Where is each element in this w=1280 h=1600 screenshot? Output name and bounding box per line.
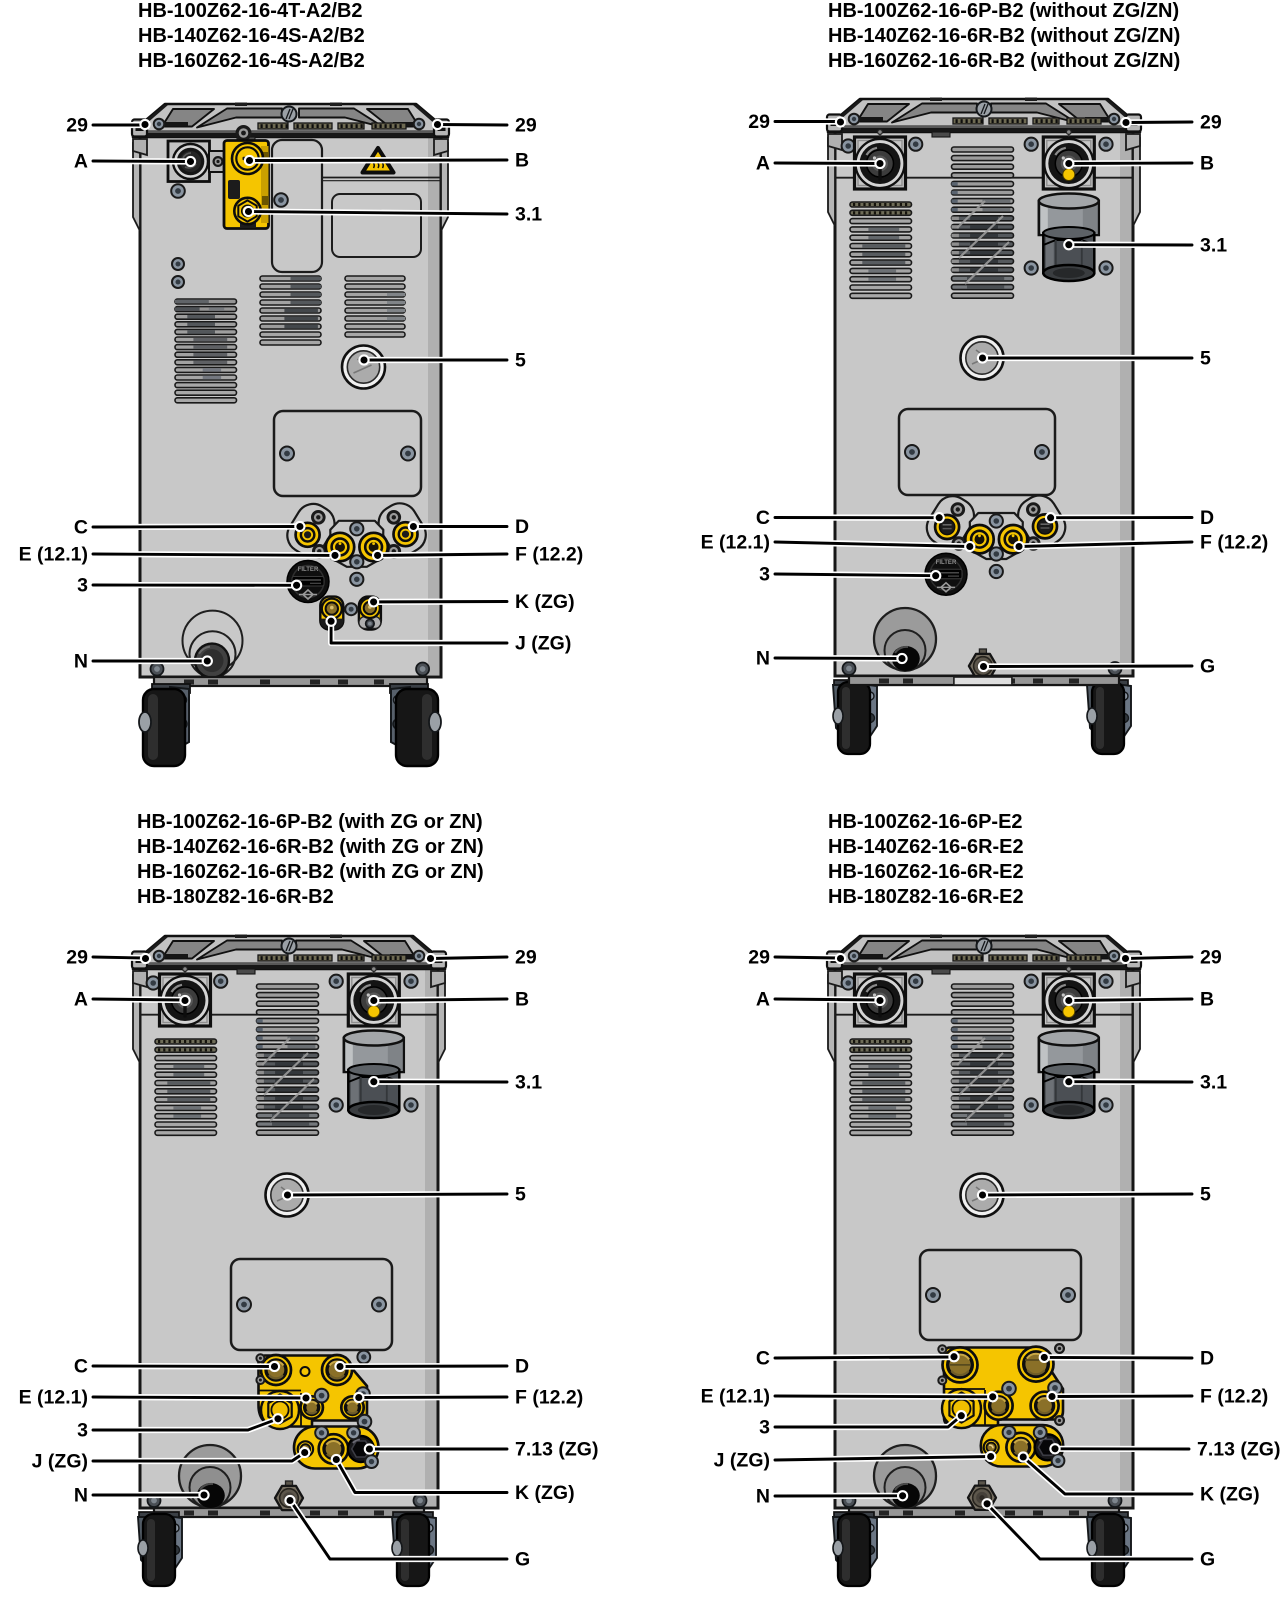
svg-text:D: D <box>1200 1348 1214 1370</box>
svg-text:29: 29 <box>1200 112 1222 134</box>
svg-text:G: G <box>1200 1549 1215 1571</box>
svg-text:29: 29 <box>515 115 537 137</box>
svg-text:F (12.2): F (12.2) <box>1200 532 1268 554</box>
svg-text:C: C <box>756 507 770 529</box>
svg-text:D: D <box>1200 507 1214 529</box>
svg-text:7.13 (ZG): 7.13 (ZG) <box>1197 1439 1280 1461</box>
svg-text:B: B <box>515 989 529 1011</box>
svg-text:D: D <box>515 1356 529 1378</box>
svg-text:B: B <box>1200 989 1214 1011</box>
svg-text:3.1: 3.1 <box>1200 235 1227 257</box>
svg-text:3.1: 3.1 <box>1200 1072 1227 1094</box>
svg-text:29: 29 <box>748 947 770 969</box>
svg-text:29: 29 <box>66 947 88 969</box>
svg-text:FILTER: FILTER <box>298 567 319 573</box>
svg-text:J (ZG): J (ZG) <box>714 1450 770 1472</box>
svg-text:F (12.2): F (12.2) <box>515 1387 583 1409</box>
svg-text:E (12.1): E (12.1) <box>701 1386 770 1408</box>
svg-text:E (12.1): E (12.1) <box>19 544 88 566</box>
svg-text:5: 5 <box>1200 1184 1211 1206</box>
svg-text:N: N <box>74 1485 88 1507</box>
svg-text:5: 5 <box>1200 348 1211 370</box>
svg-text:C: C <box>74 517 88 539</box>
svg-text:3.1: 3.1 <box>515 1072 542 1094</box>
svg-text:K (ZG): K (ZG) <box>1200 1484 1260 1506</box>
svg-text:3.1: 3.1 <box>515 204 542 226</box>
svg-text:N: N <box>756 648 770 670</box>
svg-text:D: D <box>515 516 529 538</box>
svg-text:FILTER: FILTER <box>936 560 957 566</box>
svg-text:5: 5 <box>515 1184 526 1206</box>
svg-text:G: G <box>1200 656 1215 678</box>
svg-text:J (ZG): J (ZG) <box>515 633 571 655</box>
svg-text:J (ZG): J (ZG) <box>32 1451 88 1473</box>
svg-text:7.13 (ZG): 7.13 (ZG) <box>515 1439 598 1461</box>
svg-text:3: 3 <box>759 564 770 586</box>
svg-text:3: 3 <box>759 1417 770 1439</box>
svg-text:G: G <box>515 1549 530 1571</box>
svg-text:C: C <box>756 1348 770 1370</box>
svg-text:A: A <box>74 989 88 1011</box>
svg-text:K (ZG): K (ZG) <box>515 591 575 613</box>
svg-text:F (12.2): F (12.2) <box>1200 1386 1268 1408</box>
svg-text:N: N <box>756 1486 770 1508</box>
svg-text:3: 3 <box>77 575 88 597</box>
svg-text:3: 3 <box>77 1420 88 1442</box>
svg-text:29: 29 <box>66 115 88 137</box>
svg-text:A: A <box>74 151 88 173</box>
svg-text:E (12.1): E (12.1) <box>19 1387 88 1409</box>
svg-text:A: A <box>756 153 770 175</box>
svg-text:E (12.1): E (12.1) <box>701 532 770 554</box>
svg-text:29: 29 <box>748 111 770 133</box>
svg-text:K (ZG): K (ZG) <box>515 1482 575 1504</box>
svg-text:N: N <box>74 651 88 673</box>
svg-text:29: 29 <box>515 947 537 969</box>
svg-text:F (12.2): F (12.2) <box>515 544 583 566</box>
svg-text:C: C <box>74 1356 88 1378</box>
svg-text:A: A <box>756 989 770 1011</box>
svg-text:B: B <box>1200 153 1214 175</box>
svg-text:B: B <box>515 150 529 172</box>
svg-text:29: 29 <box>1200 947 1222 969</box>
svg-text:5: 5 <box>515 350 526 372</box>
